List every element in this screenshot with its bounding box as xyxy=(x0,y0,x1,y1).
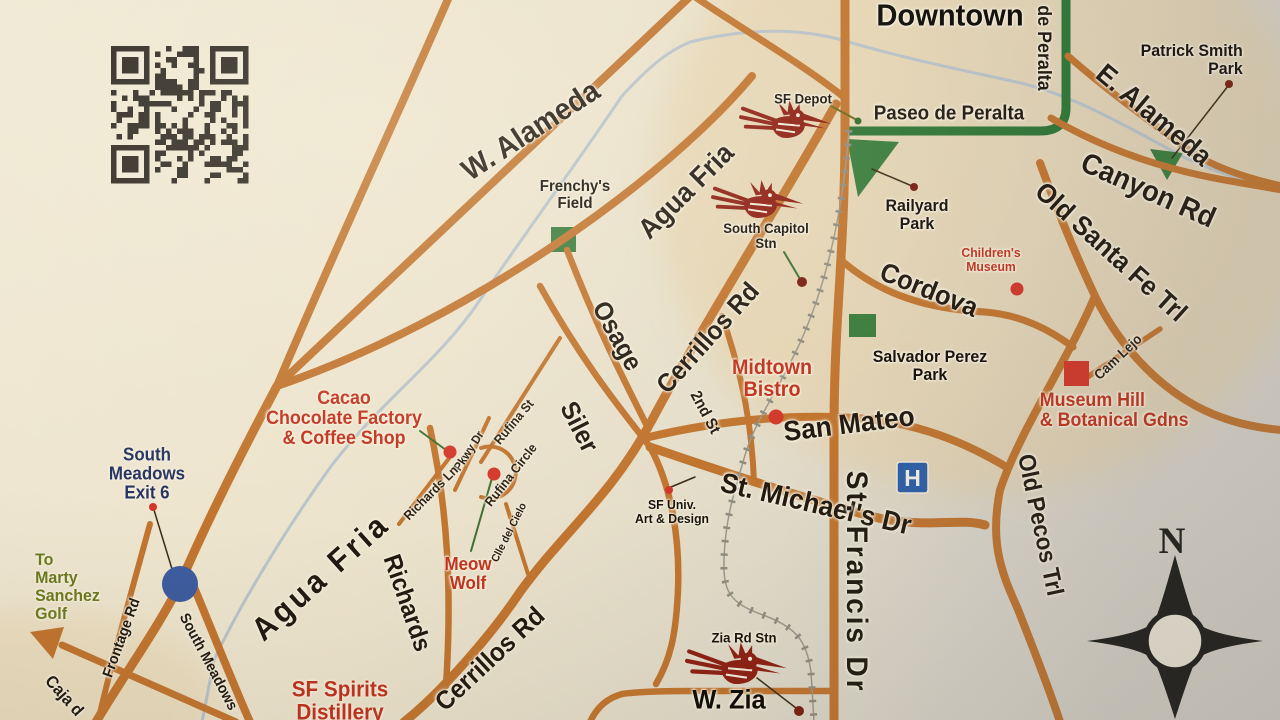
sf-univ-dot xyxy=(665,486,673,494)
patrick-smith-dot xyxy=(1225,80,1233,88)
compass-north-label: N xyxy=(1159,521,1186,562)
south-capitol-stn-dot xyxy=(797,277,807,287)
museum-hill-square xyxy=(1064,361,1089,386)
road-osage xyxy=(567,250,646,424)
sf-depot-dot xyxy=(855,118,862,125)
zia-stn-dot xyxy=(794,706,804,716)
railyard-dot xyxy=(910,183,918,191)
leader-south-meadows-exit xyxy=(154,510,172,569)
childrens-museum-dot xyxy=(1011,283,1024,296)
compass-rose: N xyxy=(1087,521,1263,719)
qr-code xyxy=(111,46,249,184)
road-nw-diagonal xyxy=(277,0,452,386)
roadrunner-icon-zia xyxy=(687,642,787,684)
salvador-perez-park-square xyxy=(849,314,876,337)
map-canvas: H N xyxy=(0,0,1280,720)
road-w-alameda xyxy=(277,0,697,386)
street-rufina-st xyxy=(481,338,560,462)
svg-text:H: H xyxy=(904,465,921,491)
leader-meow-wolf xyxy=(471,478,492,551)
interchange-circle-marker xyxy=(162,566,198,602)
midtown-bistro-dot xyxy=(769,410,784,425)
rufina-circle-dot xyxy=(488,468,501,481)
santa-fe-tourist-map: H N DowntownPaseo de Peraltade PeraltaPa… xyxy=(0,0,1280,720)
leader-sf-univ xyxy=(671,477,695,487)
road-richards xyxy=(430,428,449,686)
exit6-dot xyxy=(149,503,157,511)
street-clle-del-cielo xyxy=(506,504,528,574)
cacao-dot xyxy=(444,446,457,459)
hospital-icon: H xyxy=(897,462,928,493)
